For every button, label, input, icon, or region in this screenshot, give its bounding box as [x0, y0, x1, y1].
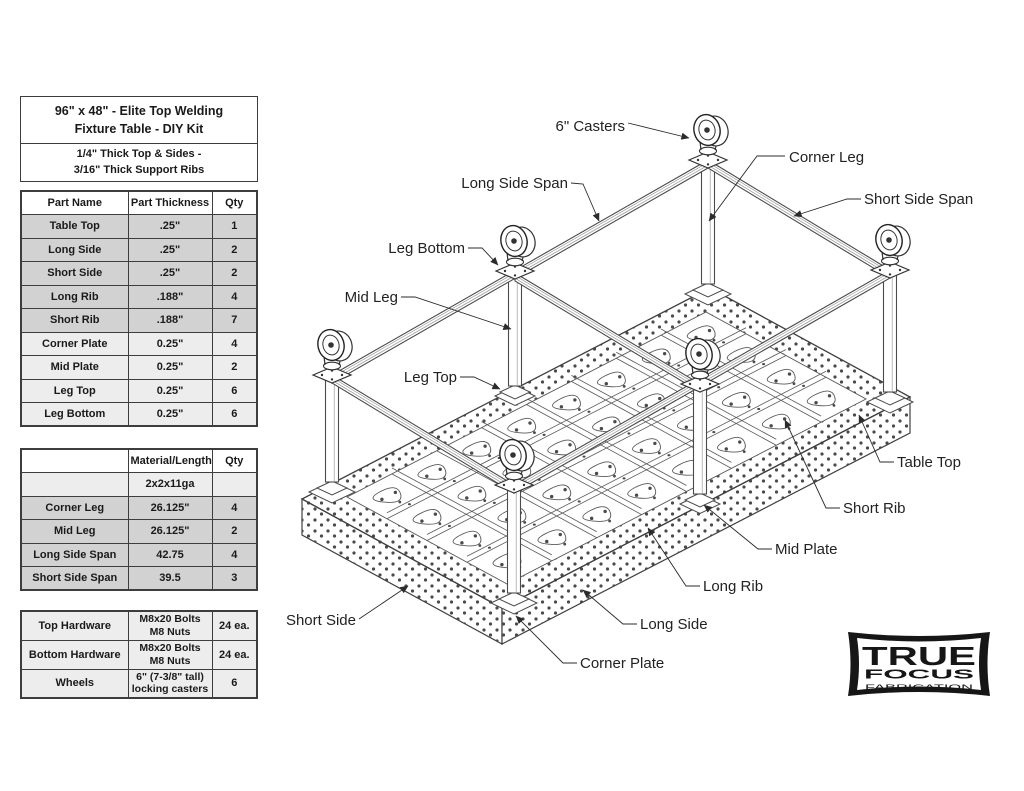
cell: 26.125" — [128, 496, 212, 520]
cell: Short Side Span — [21, 567, 128, 591]
label-casters: 6" Casters — [555, 118, 625, 135]
cell: 3 — [212, 567, 257, 591]
cell: 6" (7-3/8" tall)locking casters — [128, 669, 212, 698]
cell: Corner Leg — [21, 496, 128, 520]
label-leg-top: Leg Top — [404, 369, 457, 386]
cell: 6 — [212, 379, 257, 403]
cell: 1 — [212, 215, 257, 239]
label-short-side: Short Side — [286, 612, 356, 629]
table-row: Short Side Span39.53 — [21, 567, 257, 591]
label-mid-plate: Mid Plate — [775, 541, 838, 558]
table-row: Long Rib.188"4 — [21, 285, 257, 309]
table-row: 2x2x11ga — [21, 473, 257, 497]
cell: .188" — [128, 285, 212, 309]
sheet-subtitle: 1/4" Thick Top & Sides - 3/16" Thick Sup… — [21, 143, 257, 181]
table-row: Leg Top0.25"6 — [21, 379, 257, 403]
label-corner-plate: Corner Plate — [580, 655, 664, 672]
cell — [212, 473, 257, 497]
cell: .188" — [128, 309, 212, 333]
materials-table: Material/Length Qty 2x2x11ga Corner Leg2… — [20, 448, 258, 591]
cell: 0.25" — [128, 332, 212, 356]
leader-line — [628, 123, 689, 138]
label-leg-bottom: Leg Bottom — [388, 240, 465, 257]
table-row: Long Side Span42.754 — [21, 543, 257, 567]
col-header: Qty — [212, 449, 257, 473]
cell: 0.25" — [128, 403, 212, 427]
cell: .25" — [128, 262, 212, 286]
leader-line — [571, 183, 599, 221]
cell: Long Side Span — [21, 543, 128, 567]
cell: Short Rib — [21, 309, 128, 333]
cell: 4 — [212, 496, 257, 520]
cell: Wheels — [21, 669, 128, 698]
table-row: Leg Bottom0.25"6 — [21, 403, 257, 427]
cell: M8x20 BoltsM8 Nuts — [128, 611, 212, 640]
cell: Corner Plate — [21, 332, 128, 356]
leader-line — [359, 586, 408, 619]
table-row: Mid Plate0.25"2 — [21, 356, 257, 380]
cell: 2x2x11ga — [128, 473, 212, 497]
cell: 0.25" — [128, 379, 212, 403]
table-row: Corner Plate0.25"4 — [21, 332, 257, 356]
cell: Leg Top — [21, 379, 128, 403]
cell: M8x20 BoltsM8 Nuts — [128, 640, 212, 669]
cell: 6 — [212, 669, 257, 698]
cell: .25" — [128, 215, 212, 239]
col-header: Material/Length — [128, 449, 212, 473]
cell: 24 ea. — [212, 640, 257, 669]
label-long-rib: Long Rib — [703, 578, 763, 595]
cell: 26.125" — [128, 520, 212, 544]
subtitle-line2: 3/16" Thick Support Ribs — [74, 164, 205, 176]
cell: 42.75 — [128, 543, 212, 567]
cell: 24 ea. — [212, 611, 257, 640]
cell: Short Side — [21, 262, 128, 286]
cell: 2 — [212, 356, 257, 380]
table-row: Mid Leg26.125"2 — [21, 520, 257, 544]
caster-icon — [496, 223, 538, 279]
table-row: Short Rib.188"7 — [21, 309, 257, 333]
caster-icon — [871, 222, 913, 278]
cell: 2 — [212, 520, 257, 544]
cell: Top Hardware — [21, 611, 128, 640]
caster-icon — [689, 112, 731, 168]
leader-line — [401, 297, 511, 329]
subtitle-line1: 1/4" Thick Top & Sides - — [77, 148, 202, 160]
label-mid-leg: Mid Leg — [345, 289, 398, 306]
cell: 2 — [212, 238, 257, 262]
title-block: 96" x 48" - Elite Top Welding Fixture Ta… — [20, 96, 258, 182]
col-header: Part Thickness — [128, 191, 212, 215]
cell: 4 — [212, 285, 257, 309]
table-row: Top Hardware M8x20 BoltsM8 Nuts 24 ea. — [21, 611, 257, 640]
table-body-drawing — [302, 160, 913, 644]
label-table-top: Table Top — [897, 454, 961, 471]
label-short-side-span: Short Side Span — [864, 191, 973, 208]
table-row: Wheels 6" (7-3/8" tall)locking casters 6 — [21, 669, 257, 698]
title-line1: 96" x 48" - Elite Top Welding — [55, 104, 223, 118]
caster-icon — [313, 327, 355, 383]
col-header: Qty — [212, 191, 257, 215]
label-short-rib: Short Rib — [843, 500, 906, 517]
cell: Bottom Hardware — [21, 640, 128, 669]
logo-line2: FOCUS — [864, 668, 974, 682]
table-row: Bottom Hardware M8x20 BoltsM8 Nuts 24 ea… — [21, 640, 257, 669]
cell: 6 — [212, 403, 257, 427]
table-row: Short Side.25"2 — [21, 262, 257, 286]
cell — [21, 473, 128, 497]
cell: .25" — [128, 238, 212, 262]
cell: 2 — [212, 262, 257, 286]
col-header — [21, 449, 128, 473]
label-long-side-span: Long Side Span — [461, 175, 568, 192]
label-corner-leg: Corner Leg — [789, 149, 864, 166]
hardware-table: Top Hardware M8x20 BoltsM8 Nuts 24 ea. B… — [20, 610, 258, 699]
leader-line — [794, 199, 861, 216]
cell: 0.25" — [128, 356, 212, 380]
brand-logo: TRUE FOCUS FABRICATION — [848, 632, 990, 696]
cell: 7 — [212, 309, 257, 333]
label-long-side: Long Side — [640, 616, 708, 633]
cell: Long Rib — [21, 285, 128, 309]
header-row: Material/Length Qty — [21, 449, 257, 473]
logo-line3: FABRICATION — [865, 685, 973, 692]
title-line2: Fixture Table - DIY Kit — [75, 122, 204, 136]
header-row: Part Name Part Thickness Qty — [21, 191, 257, 215]
leader-line — [468, 248, 498, 265]
cell: Table Top — [21, 215, 128, 239]
logo-line1: TRUE — [862, 641, 976, 671]
cell: Long Side — [21, 238, 128, 262]
table-row: Long Side.25"2 — [21, 238, 257, 262]
drawing-sheet: 6" Casters Corner Leg Long Side Span Sho… — [0, 0, 1024, 791]
table-row: Table Top.25"1 — [21, 215, 257, 239]
cell: Mid Plate — [21, 356, 128, 380]
cell: 4 — [212, 543, 257, 567]
parts-table: Part Name Part Thickness Qty Table Top.2… — [20, 190, 258, 427]
cell: Leg Bottom — [21, 403, 128, 427]
cell: 4 — [212, 332, 257, 356]
leader-line — [460, 377, 500, 389]
table-row: Corner Leg26.125"4 — [21, 496, 257, 520]
sheet-title: 96" x 48" - Elite Top Welding Fixture Ta… — [21, 97, 257, 143]
col-header: Part Name — [21, 191, 128, 215]
cell: Mid Leg — [21, 520, 128, 544]
cell: 39.5 — [128, 567, 212, 591]
